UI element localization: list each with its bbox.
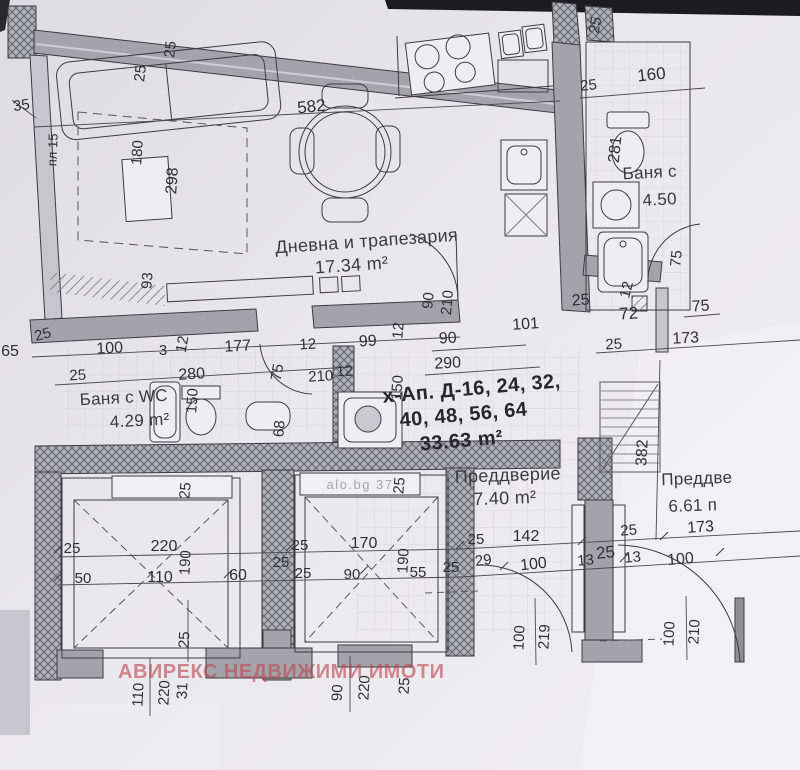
dimension-label: 290 (434, 354, 462, 372)
dimension-label: 25 (571, 291, 590, 309)
watermark-text: АВИРЕКС НЕДВИЖИМИ ИМОТИ (118, 661, 478, 684)
floorplan-drawing: 352525582пл 1518029893252516028175652510… (0, 0, 800, 770)
room-area: 6.61 п (668, 495, 717, 516)
dimension-label: 12 (299, 336, 317, 354)
dimension-label: 25 (64, 540, 81, 557)
dimension-label: 3 (159, 342, 167, 359)
dimension-label: 25 (295, 565, 312, 582)
dimension-label: 220 (151, 538, 178, 555)
dimension-label: 219 (535, 624, 553, 650)
dimension-label: 25 (586, 16, 606, 35)
dimension-label: 25 (620, 521, 638, 539)
dimension-label: 25 (468, 531, 485, 548)
room-area: 4.50 (642, 189, 677, 210)
dishwasher-icon (505, 194, 547, 236)
dimension-label: 29 (474, 551, 493, 570)
dimension-label: 12 (389, 322, 407, 340)
dimension-label: 25 (579, 76, 597, 95)
dimension-label: 31 (174, 682, 192, 700)
dimension-label: 12 (173, 335, 193, 354)
dimension-label: 35 (12, 96, 31, 115)
listing-watermark: alo.bg 37 (327, 477, 394, 492)
dimension-label: 68 (270, 420, 288, 438)
dimension-label: 75 (667, 249, 686, 267)
dimension-label: 25 (443, 559, 460, 576)
room-name: Преддве (661, 468, 733, 489)
dimension-label: 173 (687, 518, 715, 537)
dimension-label: 100 (667, 550, 695, 569)
dimension-label: 90 (344, 566, 361, 583)
dimension-label: 160 (636, 64, 666, 86)
dimension-label: 101 (512, 315, 540, 334)
dimension-label: 90 (438, 330, 457, 348)
floorplan-scan: 352525582пл 1518029893252516028175652510… (0, 0, 800, 770)
dimension-label: 100 (660, 621, 678, 647)
dimension-label: 150 (183, 388, 202, 414)
dimension-label: 100 (510, 625, 528, 651)
dimension-label: 55 (410, 564, 427, 581)
dimension-label: 75 (268, 363, 288, 382)
dimension-label: 25 (595, 542, 616, 563)
dimension-label: 25 (161, 40, 180, 59)
dimension-label: 110 (129, 682, 147, 707)
dimension-label: 13 (624, 548, 642, 566)
dimension-label: 93 (138, 272, 156, 290)
dimension-label: 210 (308, 367, 334, 385)
dimension-label: 190 (176, 550, 194, 576)
dimension-label: 13 (577, 551, 595, 569)
dimension-label: 60 (229, 567, 247, 584)
dimension-label: 90 (329, 684, 347, 702)
dimension-label: 25 (176, 631, 194, 649)
dimension-label: 170 (351, 535, 378, 552)
dimension-label: 281 (606, 135, 626, 163)
room-area: 7.40 m² (473, 487, 537, 509)
dimension-label: 72 (619, 303, 639, 323)
dimension-label: 25 (176, 482, 194, 500)
dimension-label: 210 (438, 289, 457, 315)
dimension-label: 177 (224, 337, 252, 355)
room-area: 4.29 m² (109, 409, 170, 431)
washing-machine-icon (593, 182, 639, 228)
dimension-label: 12 (336, 363, 354, 381)
elevator-door (112, 476, 232, 498)
counter-sink-icon (501, 140, 547, 190)
dimension-label: 298 (163, 167, 182, 195)
dimension-label: 99 (358, 333, 377, 351)
dimension-label: 382 (633, 439, 651, 467)
dimension-label: 110 (147, 569, 173, 586)
dimension-label: пл 15 (44, 133, 60, 166)
dimension-label: 100 (96, 339, 124, 357)
dimension-label: 25 (292, 537, 309, 554)
dimension-label: 280 (178, 365, 206, 383)
dimension-label: 75 (691, 297, 710, 315)
room-name: Баня с (622, 162, 677, 184)
dimension-label: 582 (296, 96, 326, 118)
dimension-label: 180 (128, 140, 147, 166)
dimension-label: 173 (672, 329, 700, 347)
dimension-label: 210 (685, 619, 703, 645)
dimension-label: 25 (273, 554, 290, 571)
dimension-label: 90 (419, 292, 437, 310)
dimension-label: 50 (75, 570, 92, 587)
dimension-label: 25 (69, 367, 87, 385)
room-name: Преддверие (454, 463, 561, 487)
dimension-label: 100 (519, 555, 547, 575)
dimension-label: 25 (605, 336, 623, 354)
paper-corner-highlight (0, 705, 220, 770)
dimension-label: 65 (1, 343, 19, 360)
dimension-label: 142 (513, 528, 540, 545)
dimension-label: 25 (131, 64, 150, 83)
